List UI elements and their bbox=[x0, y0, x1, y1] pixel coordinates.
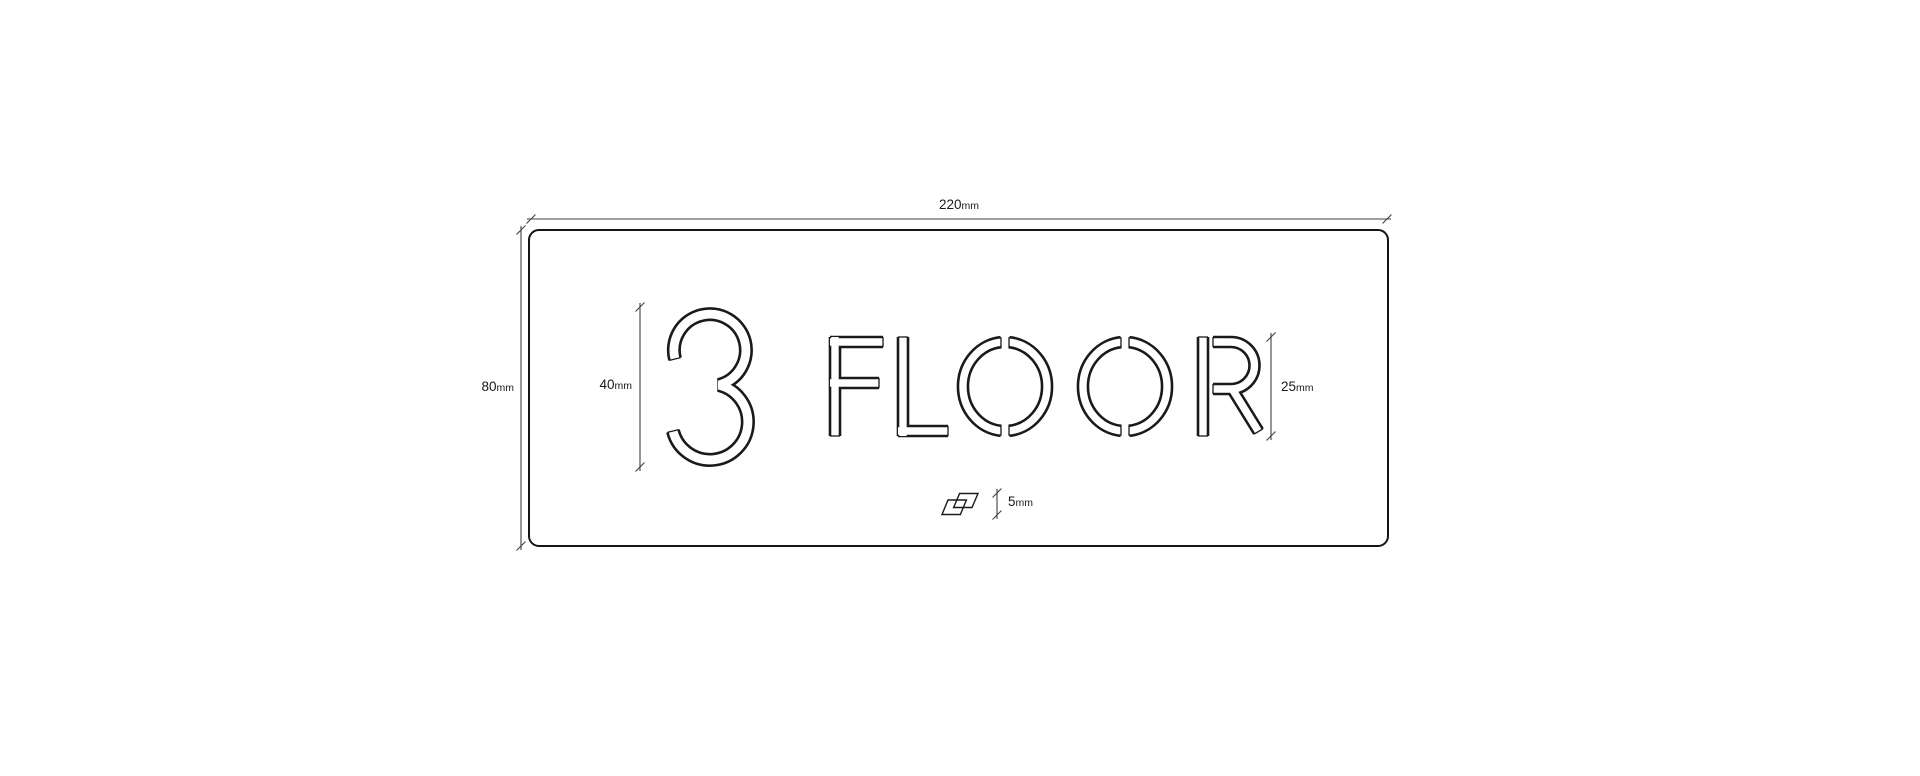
dimension-unit: mm bbox=[615, 380, 633, 392]
dimension-value: 220 bbox=[939, 197, 962, 212]
plate-width-dimension-label: 220mm bbox=[879, 197, 1039, 214]
dimension-value: 40 bbox=[599, 377, 614, 392]
dimension-unit: mm bbox=[497, 382, 515, 394]
technical-drawing-canvas: 220mm 80mm 40mm 25mm 5mm bbox=[0, 0, 1920, 776]
dimension-value: 80 bbox=[481, 379, 496, 394]
dimension-value: 25 bbox=[1281, 379, 1296, 394]
dimension-unit: mm bbox=[962, 200, 980, 212]
dimension-plate-height bbox=[517, 226, 526, 551]
drawing-svg bbox=[0, 0, 1920, 776]
logo-height-dimension-label: 5mm bbox=[1008, 494, 1102, 511]
number-height-dimension-label: 40mm bbox=[538, 377, 632, 394]
dimension-plate-width bbox=[527, 215, 1392, 224]
plate-height-dimension-label: 80mm bbox=[420, 379, 514, 396]
dimension-unit: mm bbox=[1296, 382, 1314, 394]
label-height-dimension-label: 25mm bbox=[1281, 379, 1375, 396]
dimension-value: 5 bbox=[1008, 494, 1016, 509]
dimension-unit: mm bbox=[1016, 497, 1034, 509]
